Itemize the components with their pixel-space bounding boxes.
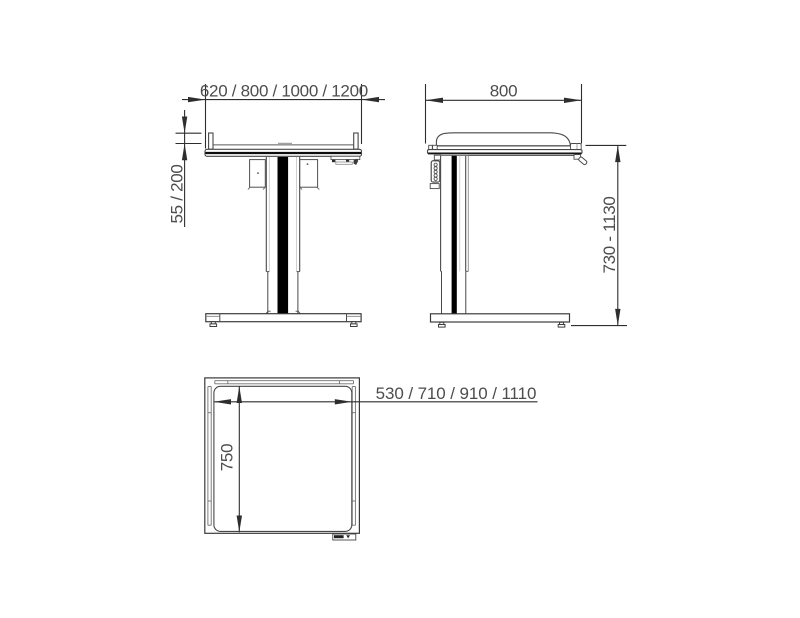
svg-text:55 / 200: 55 / 200 bbox=[168, 164, 187, 223]
svg-text:530 / 710 / 910 / 1110: 530 / 710 / 910 / 1110 bbox=[376, 384, 537, 403]
svg-text:800: 800 bbox=[490, 81, 517, 100]
svg-text:730 - 1130: 730 - 1130 bbox=[600, 196, 619, 273]
svg-text:620 / 800 / 1000 / 1200: 620 / 800 / 1000 / 1200 bbox=[200, 81, 368, 100]
svg-text:750: 750 bbox=[218, 444, 237, 471]
